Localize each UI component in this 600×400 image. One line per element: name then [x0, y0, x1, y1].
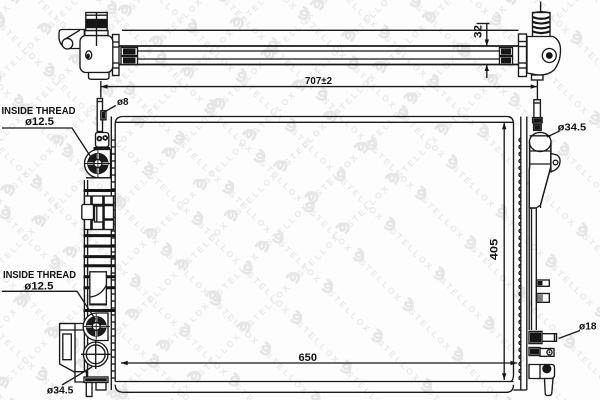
svg-text:ø8: ø8	[117, 96, 129, 108]
svg-text:405: 405	[489, 239, 501, 261]
svg-text:ø34.5: ø34.5	[558, 121, 587, 133]
svg-text:650: 650	[299, 352, 318, 364]
svg-text:ø18: ø18	[579, 321, 597, 333]
svg-text:INSIDE THREAD: INSIDE THREAD	[3, 269, 76, 281]
svg-text:ø34.5: ø34.5	[47, 385, 74, 397]
svg-text:32: 32	[473, 25, 485, 38]
svg-text:ø12.5: ø12.5	[25, 116, 54, 128]
svg-text:707±2: 707±2	[305, 75, 332, 87]
